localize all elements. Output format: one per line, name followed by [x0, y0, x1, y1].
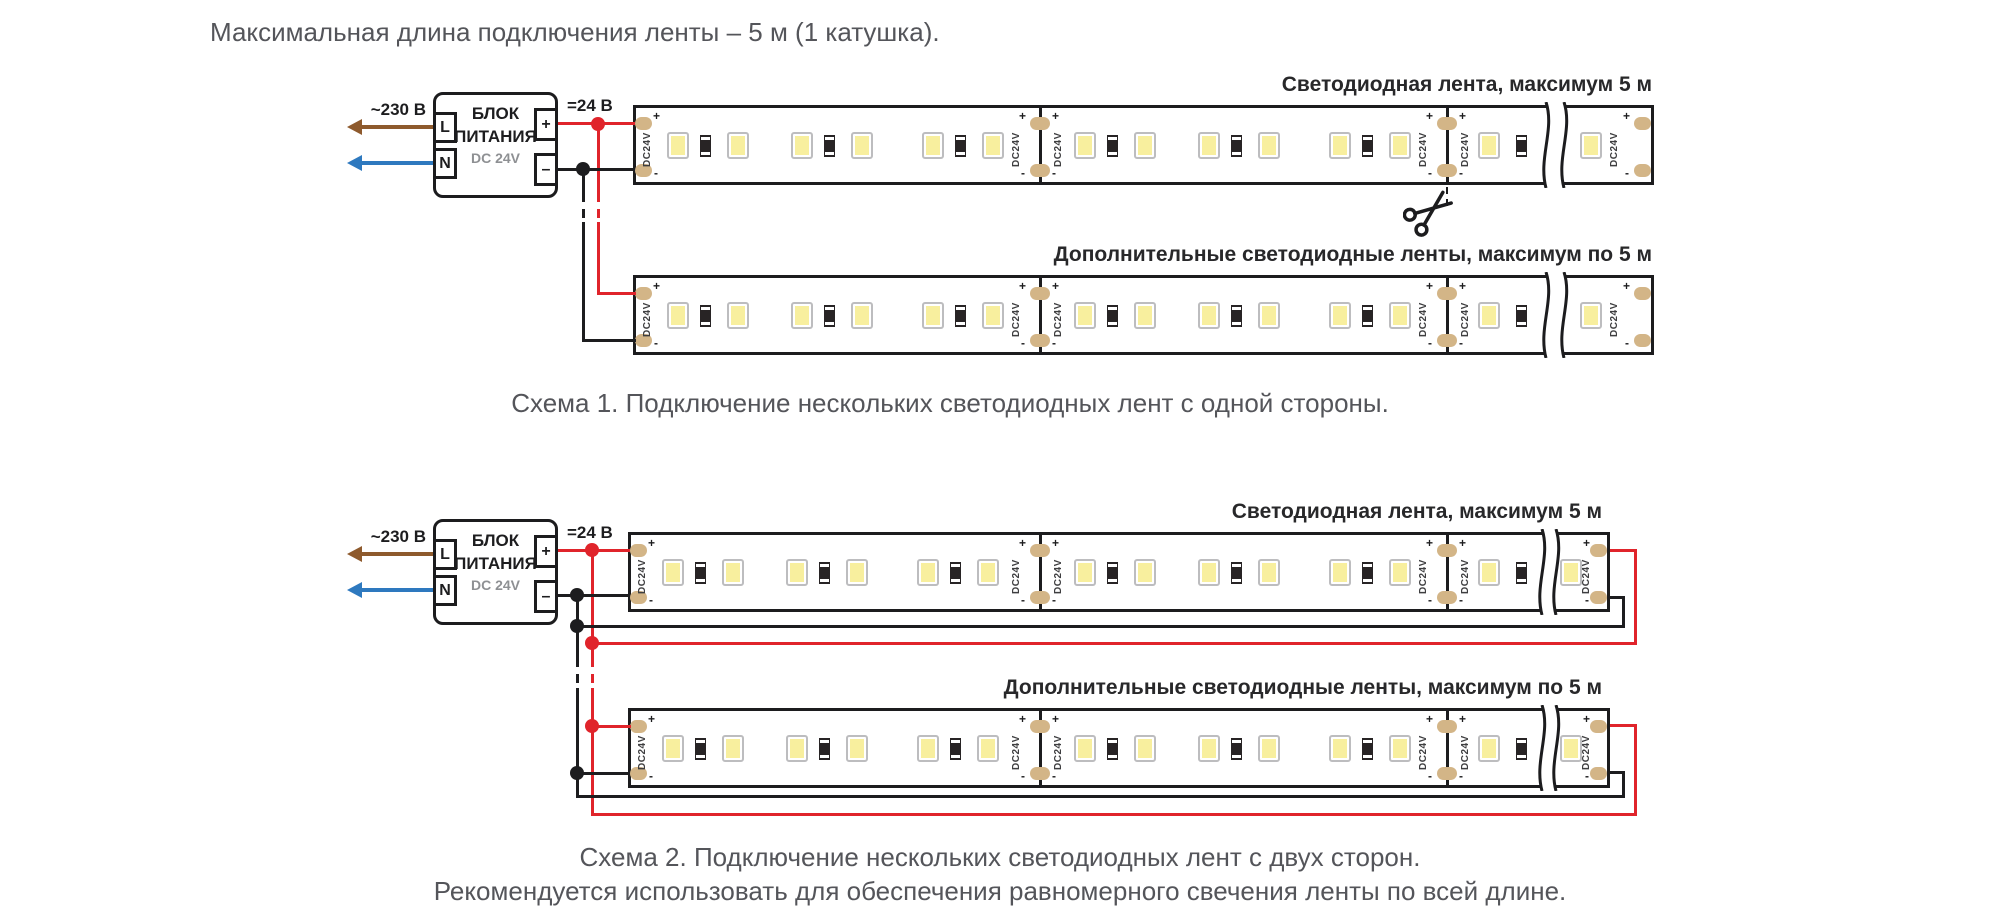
strip-voltage-label: DC24V — [1053, 553, 1069, 601]
negative-wire — [576, 795, 1625, 798]
positive-wire — [1634, 725, 1637, 816]
led-chip — [1389, 559, 1411, 586]
negative-wire — [576, 625, 1625, 628]
negative-wire — [1622, 597, 1625, 628]
positive-wire — [1634, 549, 1637, 645]
polarity-plus: + — [1459, 280, 1466, 292]
positive-wire — [591, 642, 1637, 645]
polarity-plus: + — [653, 110, 660, 122]
output-voltage-label: =24 В — [567, 96, 613, 116]
led-chip — [1074, 302, 1096, 329]
polarity-plus: + — [1052, 280, 1059, 292]
neutral-wire-arrow-icon — [347, 582, 362, 598]
led-chip — [667, 132, 689, 159]
led-chip — [1389, 302, 1411, 329]
negative-wire — [576, 658, 579, 688]
psu-terminal-plus: + — [534, 108, 558, 141]
strip-voltage-label: DC24V — [1418, 296, 1434, 344]
led-chip — [786, 735, 808, 762]
resistor-chip — [700, 135, 711, 157]
strip-voltage-label: DC24V — [1460, 126, 1476, 174]
psu-terminal-minus: – — [534, 580, 558, 613]
polarity-plus: + — [1426, 280, 1433, 292]
negative-wire — [582, 222, 585, 342]
psu-name-line2: ПИТАНИЯ — [454, 127, 537, 146]
junction-dot — [585, 636, 599, 650]
neutral-wire-arrow-icon — [347, 155, 362, 171]
led-chip — [1478, 735, 1500, 762]
led-chip — [851, 302, 873, 329]
led-chip — [1258, 735, 1280, 762]
solder-pad — [1030, 544, 1050, 557]
strip-voltage-label: DC24V — [637, 729, 653, 777]
led-chip — [1560, 735, 1582, 762]
strip-voltage-label: DC24V — [1609, 296, 1625, 344]
strip-voltage-label: DC24V — [1418, 729, 1434, 777]
resistor-chip — [700, 305, 711, 327]
resistor-chip — [1362, 305, 1373, 327]
solder-pad — [1437, 287, 1457, 300]
negative-wire — [1610, 596, 1625, 599]
solder-pad — [1634, 117, 1651, 130]
negative-wire — [1610, 771, 1625, 774]
negative-wire — [582, 339, 636, 342]
positive-wire — [597, 222, 600, 295]
led-chip — [982, 302, 1004, 329]
led-chip — [922, 302, 944, 329]
led-chip — [786, 559, 808, 586]
strip-voltage-label: DC24V — [642, 296, 658, 344]
schema2-caption: Схема 2. Подключение нескольких светодио… — [200, 842, 1800, 873]
strip-label-main: Светодиодная лента, максимум 5 м — [1002, 500, 1602, 524]
led-chip — [1134, 302, 1156, 329]
polarity-plus: + — [1459, 713, 1466, 725]
negative-wire — [582, 193, 585, 222]
solder-pad — [1030, 164, 1050, 177]
solder-pad — [1634, 334, 1651, 347]
polarity-plus: + — [1459, 537, 1466, 549]
power-supply-unit: L N + – БЛОКПИТАНИЯ DC 24V — [433, 92, 558, 198]
resistor-chip — [1107, 305, 1118, 327]
led-chip — [1389, 132, 1411, 159]
negative-wire — [558, 168, 635, 171]
led-chip — [1074, 559, 1096, 586]
resistor-chip — [1231, 738, 1242, 760]
polarity-plus: + — [1426, 537, 1433, 549]
strip-voltage-label: DC24V — [1460, 553, 1476, 601]
led-chip — [1198, 302, 1220, 329]
resistor-chip — [1516, 135, 1527, 157]
junction-dot — [585, 719, 599, 733]
strip-voltage-label: DC24V — [1011, 296, 1027, 344]
resistor-chip — [695, 738, 706, 760]
strip-voltage-label: DC24V — [1053, 296, 1069, 344]
psu-terminal-n: N — [433, 148, 457, 179]
strip-voltage-label: DC24V — [1011, 126, 1027, 174]
led-chip — [722, 735, 744, 762]
led-chip — [1580, 132, 1602, 159]
resistor-chip — [950, 562, 961, 584]
resistor-chip — [955, 305, 966, 327]
junction-dot — [576, 162, 590, 176]
strip-voltage-label: DC24V — [1460, 729, 1476, 777]
strip-voltage-label: DC24V — [1418, 126, 1434, 174]
led-chip — [791, 132, 813, 159]
resistor-chip — [1516, 738, 1527, 760]
led-chip — [1134, 132, 1156, 159]
solder-pad — [1437, 720, 1457, 733]
strip-voltage-label: DC24V — [1460, 296, 1476, 344]
polarity-plus: + — [1052, 713, 1059, 725]
mains-voltage-label: ~230 В — [338, 527, 426, 547]
resistor-chip — [819, 738, 830, 760]
polarity-minus: - — [1585, 594, 1589, 606]
led-chip — [1329, 132, 1351, 159]
junction-dot — [591, 117, 605, 131]
resistor-chip — [1362, 135, 1373, 157]
polarity-plus: + — [1583, 713, 1590, 725]
psu-terminal-l: L — [433, 539, 457, 570]
diagram-title: Максимальная длина подключения ленты – 5… — [210, 17, 940, 48]
psu-terminal-minus: – — [534, 153, 558, 186]
led-chip — [851, 132, 873, 159]
led-chip — [846, 559, 868, 586]
mains-voltage-label: ~230 В — [338, 100, 426, 120]
psu-terminal-n: N — [433, 575, 457, 606]
negative-wire — [554, 594, 630, 597]
solder-pad — [1590, 720, 1607, 733]
polarity-plus: + — [648, 713, 655, 725]
strip-label-main: Светодиодная лента, максимум 5 м — [1052, 73, 1652, 97]
led-chip — [1329, 735, 1351, 762]
solder-pad — [1437, 117, 1457, 130]
polarity-plus: + — [1459, 110, 1466, 122]
live-wire-line — [362, 552, 434, 556]
led-chip — [1389, 735, 1411, 762]
strip-label-additional: Дополнительные светодиодные ленты, макси… — [1052, 243, 1652, 267]
polarity-plus: + — [1052, 537, 1059, 549]
positive-wire — [597, 292, 636, 295]
resistor-chip — [695, 562, 706, 584]
strip-voltage-label: DC24V — [1053, 729, 1069, 777]
resistor-chip — [955, 135, 966, 157]
resistor-chip — [1107, 738, 1118, 760]
strip-label-additional: Дополнительные светодиодные ленты, макси… — [1002, 676, 1602, 700]
psu-name-line2: ПИТАНИЯ — [454, 554, 537, 573]
live-wire-arrow-icon — [347, 546, 362, 562]
polarity-plus: + — [1019, 110, 1026, 122]
polarity-plus: + — [1019, 280, 1026, 292]
led-chip — [1478, 302, 1500, 329]
polarity-plus: + — [1426, 713, 1433, 725]
led-chip — [1560, 559, 1582, 586]
polarity-plus: + — [1426, 110, 1433, 122]
solder-pad — [1437, 767, 1457, 780]
negative-wire — [576, 688, 579, 798]
solder-pad — [1030, 117, 1050, 130]
solder-pad — [1030, 767, 1050, 780]
psu-name-line1: БЛОК — [472, 531, 519, 550]
polarity-plus: + — [653, 280, 660, 292]
negative-wire — [1622, 772, 1625, 798]
resistor-chip — [1516, 562, 1527, 584]
polarity-plus: + — [1019, 713, 1026, 725]
scissors-icon — [1403, 184, 1457, 238]
polarity-minus: - — [1585, 770, 1589, 782]
positive-wire — [1610, 549, 1637, 552]
led-chip — [1478, 132, 1500, 159]
led-chip — [1580, 302, 1602, 329]
polarity-plus: + — [1019, 537, 1026, 549]
schema2-note: Рекомендуется использовать для обеспечен… — [200, 876, 1800, 907]
led-chip — [1198, 559, 1220, 586]
resistor-chip — [1231, 305, 1242, 327]
solder-pad — [1590, 591, 1607, 604]
junction-dot — [570, 619, 584, 633]
led-chip — [1198, 735, 1220, 762]
solder-pad — [1030, 334, 1050, 347]
led-chip — [917, 559, 939, 586]
resistor-chip — [824, 135, 835, 157]
led-chip — [977, 559, 999, 586]
resistor-chip — [824, 305, 835, 327]
strip-voltage-label: DC24V — [1011, 553, 1027, 601]
strip-voltage-label: DC24V — [1418, 553, 1434, 601]
polarity-plus: + — [1052, 110, 1059, 122]
positive-wire — [597, 122, 600, 193]
positive-wire — [597, 193, 600, 222]
led-chip — [1074, 735, 1096, 762]
solder-pad — [1634, 287, 1651, 300]
resistor-chip — [1362, 562, 1373, 584]
led-chip — [846, 735, 868, 762]
strip-break — [1533, 102, 1577, 188]
led-chip — [667, 302, 689, 329]
polarity-plus: + — [1623, 280, 1630, 292]
resistor-chip — [819, 562, 830, 584]
led-chip — [791, 302, 813, 329]
polarity-plus: + — [1623, 110, 1630, 122]
positive-wire — [1610, 724, 1637, 727]
solder-pad — [1030, 720, 1050, 733]
solder-pad — [1437, 334, 1457, 347]
psu-terminal-l: L — [433, 112, 457, 143]
solder-pad — [1590, 544, 1607, 557]
solder-pad — [1634, 164, 1651, 177]
solder-pad — [1590, 767, 1607, 780]
led-chip — [662, 559, 684, 586]
led-chip — [1329, 302, 1351, 329]
junction-dot — [570, 588, 584, 602]
led-chip — [917, 735, 939, 762]
led-chip — [1134, 559, 1156, 586]
schema1-caption: Схема 1. Подключение нескольких светодио… — [150, 388, 1750, 419]
led-chip — [1134, 735, 1156, 762]
strip-voltage-label: DC24V — [1053, 126, 1069, 174]
led-chip — [1478, 559, 1500, 586]
psu-name-line1: БЛОК — [472, 104, 519, 123]
led-chip — [922, 132, 944, 159]
led-chip — [727, 132, 749, 159]
polarity-minus: - — [1625, 167, 1629, 179]
power-supply-unit: L N + – БЛОКПИТАНИЯ DC 24V — [433, 519, 558, 625]
solder-pad — [1437, 544, 1457, 557]
negative-wire — [576, 772, 630, 775]
psu-terminal-plus: + — [534, 535, 558, 568]
strip-voltage-label: DC24V — [642, 126, 658, 174]
solder-pad — [1437, 164, 1457, 177]
strip-break — [1533, 272, 1577, 358]
positive-wire — [591, 813, 1637, 816]
live-wire-line — [362, 125, 434, 129]
led-chip — [1258, 559, 1280, 586]
led-chip — [722, 559, 744, 586]
strip-voltage-label: DC24V — [637, 553, 653, 601]
led-chip — [1198, 132, 1220, 159]
positive-wire — [591, 658, 594, 688]
led-chip — [727, 302, 749, 329]
solder-pad — [1030, 591, 1050, 604]
led-chip — [662, 735, 684, 762]
led-chip — [1258, 132, 1280, 159]
led-chip — [1074, 132, 1096, 159]
resistor-chip — [1231, 135, 1242, 157]
polarity-plus: + — [648, 537, 655, 549]
resistor-chip — [950, 738, 961, 760]
solder-pad — [1437, 591, 1457, 604]
resistor-chip — [1516, 305, 1527, 327]
polarity-plus: + — [1583, 537, 1590, 549]
solder-pad — [1030, 287, 1050, 300]
polarity-minus: - — [1625, 337, 1629, 349]
led-strip-wiring-diagram: Максимальная длина подключения ленты – 5… — [0, 0, 2000, 915]
resistor-chip — [1107, 135, 1118, 157]
resistor-chip — [1107, 562, 1118, 584]
output-voltage-label: =24 В — [567, 523, 613, 543]
live-wire-arrow-icon — [347, 119, 362, 135]
resistor-chip — [1362, 738, 1373, 760]
strip-voltage-label: DC24V — [1011, 729, 1027, 777]
neutral-wire-line — [362, 161, 434, 165]
led-chip — [977, 735, 999, 762]
neutral-wire-line — [362, 588, 434, 592]
led-chip — [982, 132, 1004, 159]
resistor-chip — [1231, 562, 1242, 584]
strip-voltage-label: DC24V — [1609, 126, 1625, 174]
junction-dot — [570, 766, 584, 780]
led-chip — [1329, 559, 1351, 586]
led-chip — [1258, 302, 1280, 329]
junction-dot — [585, 543, 599, 557]
